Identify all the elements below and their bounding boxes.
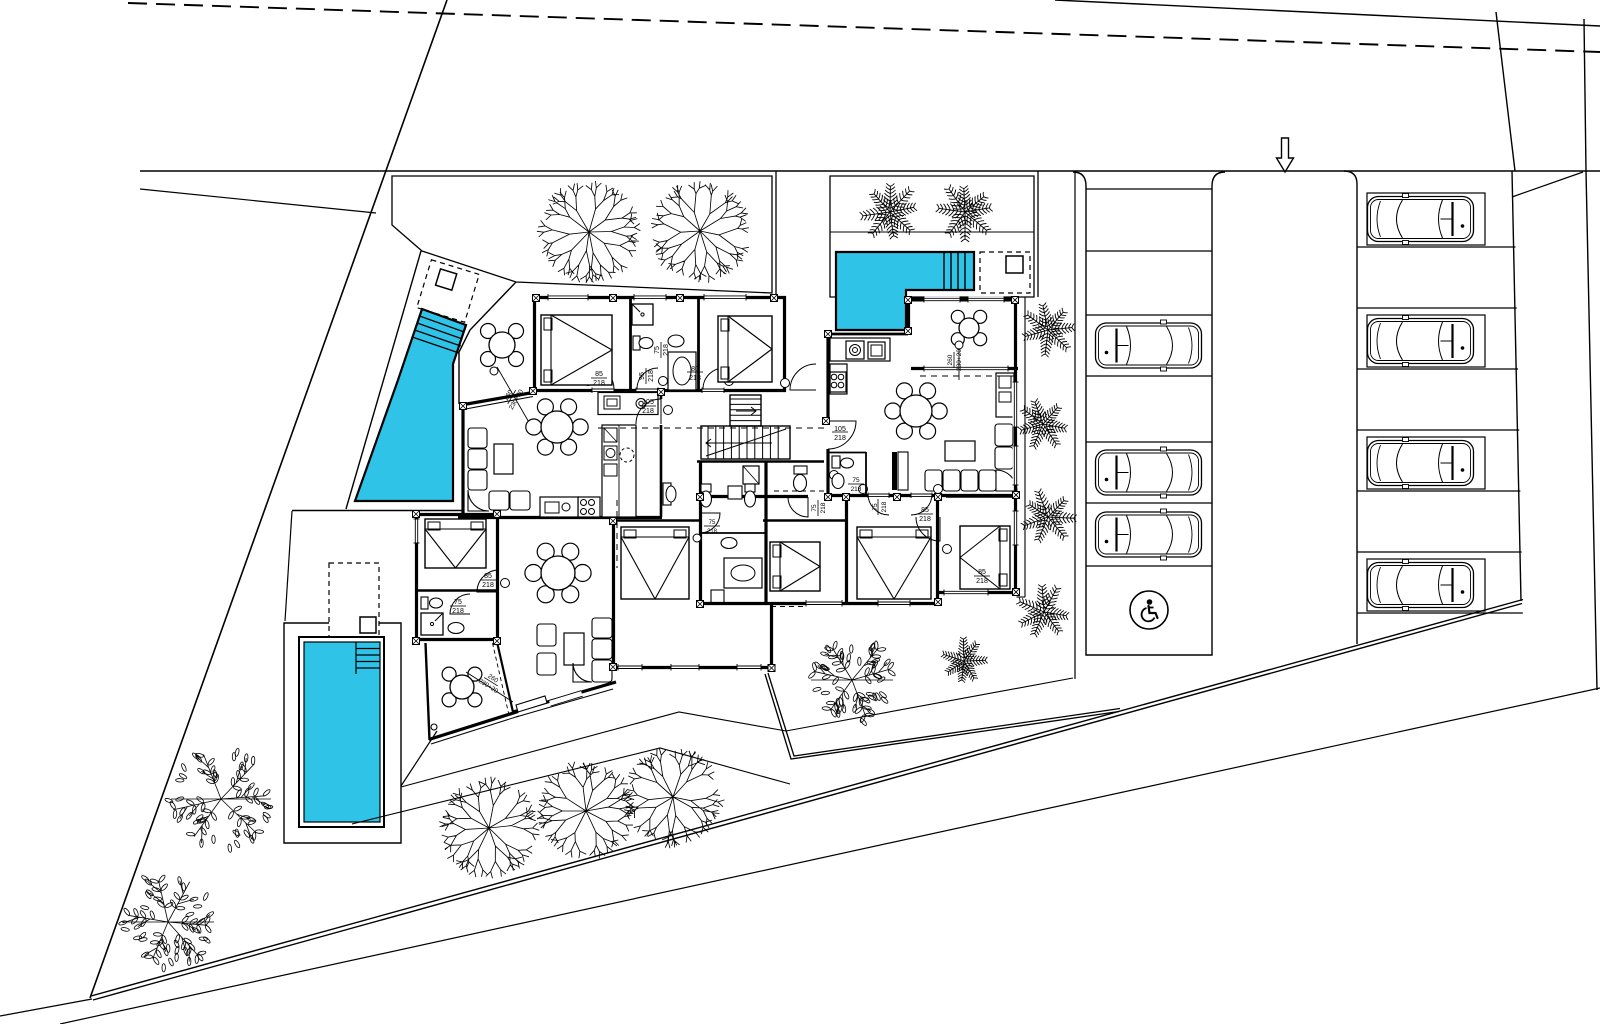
svg-text:75: 75 [852, 477, 860, 484]
svg-text:105: 105 [642, 399, 654, 406]
svg-text:75: 75 [709, 520, 716, 526]
svg-text:85: 85 [595, 371, 603, 378]
svg-text:85: 85 [978, 569, 986, 576]
svg-text:218: 218 [689, 375, 701, 382]
svg-text:218: 218 [482, 582, 494, 589]
svg-text:218: 218 [976, 578, 988, 585]
svg-text:260: 260 [947, 354, 954, 365]
svg-text:230+20: 230+20 [956, 349, 963, 371]
svg-text:218: 218 [452, 608, 464, 615]
svg-text:218: 218 [663, 344, 670, 356]
svg-text:85: 85 [484, 573, 492, 580]
svg-text:218: 218 [881, 501, 888, 512]
svg-text:75: 75 [654, 346, 661, 354]
svg-text:95: 95 [639, 372, 646, 380]
svg-text:75: 75 [454, 599, 462, 606]
svg-text:218: 218 [919, 516, 931, 523]
svg-text:218: 218 [851, 486, 862, 493]
svg-text:218: 218 [820, 502, 827, 513]
svg-text:85: 85 [921, 507, 929, 514]
svg-text:218: 218 [648, 370, 655, 382]
svg-text:218: 218 [593, 380, 605, 387]
svg-text:218: 218 [642, 408, 654, 415]
svg-text:218: 218 [707, 529, 718, 535]
svg-text:218: 218 [834, 435, 846, 442]
svg-text:75: 75 [811, 504, 818, 512]
